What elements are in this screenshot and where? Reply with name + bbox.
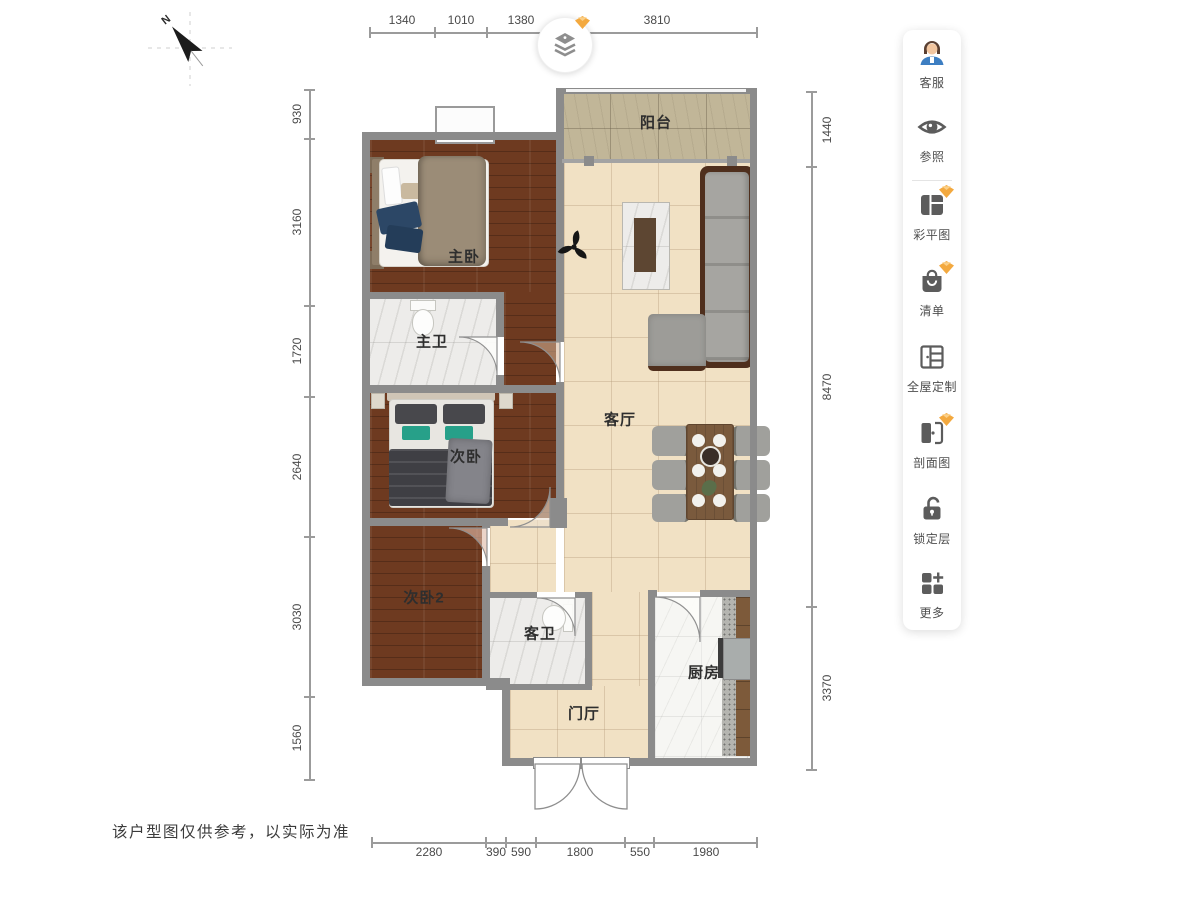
sidebar-item-more[interactable]: 更多 [903, 568, 961, 621]
dim-tick [304, 536, 315, 538]
compass-needle [165, 21, 203, 62]
dim-tick [369, 27, 371, 38]
premium-gem-icon [939, 261, 954, 274]
layers-button[interactable] [537, 17, 593, 73]
wardrobe-icon [917, 342, 947, 372]
dim-tick [806, 91, 817, 93]
sidebar-item-label: 彩平图 [903, 226, 961, 243]
sidebar-item-support[interactable]: 客服 [903, 38, 961, 91]
sidebar-item-label: 锁定层 [903, 530, 961, 547]
room-label-balcony: 阳台 [640, 112, 672, 133]
sidebar-item-label: 剖面图 [903, 454, 961, 471]
dim-tick [756, 837, 758, 848]
sidebar-item-section-view[interactable]: 剖面图 [903, 418, 961, 471]
dim-tick [304, 89, 315, 91]
dim-line-bottom [372, 842, 757, 844]
premium-gem-icon [575, 16, 590, 29]
sidebar-divider [912, 180, 952, 181]
ceiling-fan-icon [557, 230, 589, 261]
disclaimer-text: 该户型图仅供参考，以实际为准 [112, 820, 350, 842]
plan-overlay: N [0, 0, 1200, 900]
dim-tick [304, 696, 315, 698]
sidebar-item-label: 参照 [903, 148, 961, 165]
room-label-kitchen: 厨房 [688, 662, 720, 683]
dim-tick [304, 779, 315, 781]
dim-tick [653, 837, 655, 848]
door-arc-entry-right [582, 764, 627, 809]
sidebar-item-reference[interactable]: 参照 [903, 112, 961, 165]
dim-tick [756, 27, 758, 38]
sidebar-item-label: 全屋定制 [903, 378, 961, 395]
sidebar-item-label: 更多 [903, 604, 961, 621]
sidebar-item-custom-home[interactable]: 全屋定制 [903, 342, 961, 395]
layers-icon [550, 30, 580, 60]
dim-right-2: 8470 [820, 374, 834, 401]
door-arc-master-suite [520, 342, 560, 382]
dim-left-1: 930 [290, 104, 304, 124]
door-arc-entry-left [535, 764, 580, 809]
premium-gem-icon [939, 185, 954, 198]
dim-top-1: 1340 [389, 13, 416, 27]
room-label-master: 主卧 [448, 246, 480, 267]
dim-tick [806, 606, 817, 608]
toolbar-sidebar: 客服 参照 彩平图 [903, 30, 961, 630]
dim-top-4: 3810 [644, 13, 671, 27]
door-arc-master-bath [459, 337, 497, 375]
dim-bottom-2: 390 [486, 845, 506, 859]
dim-bottom-6: 1980 [693, 845, 720, 859]
dim-tick [806, 769, 817, 771]
color-plan-icon [917, 190, 947, 220]
sidebar-item-list[interactable]: 清单 [903, 266, 961, 319]
dim-tick [806, 166, 817, 168]
dim-bottom-4: 1800 [567, 845, 594, 859]
sidebar-item-lock-layer[interactable]: 锁定层 [903, 494, 961, 547]
room-label-master-bath: 主卫 [416, 331, 448, 352]
dim-bottom-3: 590 [511, 845, 531, 859]
dim-line-left [309, 90, 311, 780]
dim-left-3: 1720 [290, 338, 304, 365]
premium-gem-icon [939, 413, 954, 426]
door-arc-bedroom2b [449, 528, 487, 566]
door-arc-bedroom2 [510, 487, 550, 527]
room-label-guest-bath: 客卫 [524, 623, 556, 644]
dim-tick [371, 837, 373, 848]
sidebar-item-label: 清单 [903, 302, 961, 319]
dim-tick [535, 837, 537, 848]
dim-tick [624, 837, 626, 848]
unlock-icon [917, 494, 947, 524]
room-label-bedroom2: 次卧 [450, 446, 482, 467]
dim-top-3: 1380 [508, 13, 535, 27]
floorplan-app: { "page": { "disclaimer": "该户型图仅供参考，以实际为… [0, 0, 1200, 900]
dim-tick [304, 396, 315, 398]
dim-left-5: 3030 [290, 604, 304, 631]
more-grid-icon [917, 568, 947, 598]
dim-tick [434, 27, 436, 38]
section-icon [917, 418, 947, 448]
sidebar-item-label: 客服 [903, 74, 961, 91]
dim-tick [304, 305, 315, 307]
compass-north-label: N [159, 13, 173, 27]
compass: N [148, 12, 232, 86]
dim-bottom-5: 550 [630, 845, 650, 859]
door-arc-kitchen [655, 597, 700, 642]
dim-bottom-1: 2280 [416, 845, 443, 859]
dim-left-4: 2640 [290, 454, 304, 481]
support-agent-icon [917, 38, 947, 68]
room-label-living: 客厅 [604, 409, 636, 430]
dim-right-3: 3370 [820, 675, 834, 702]
dim-top-2: 1010 [448, 13, 475, 27]
dim-tick [486, 27, 488, 38]
room-label-bedroom2b: 次卧2 [403, 587, 444, 608]
eye-icon [917, 112, 947, 142]
room-label-entry: 门厅 [568, 703, 600, 724]
dim-right-1: 1440 [820, 117, 834, 144]
dim-tick [304, 138, 315, 140]
dim-left-6: 1560 [290, 725, 304, 752]
list-bag-icon [917, 266, 947, 296]
dim-line-right [811, 92, 813, 770]
dim-left-2: 3160 [290, 209, 304, 236]
sidebar-item-color-plan[interactable]: 彩平图 [903, 190, 961, 243]
